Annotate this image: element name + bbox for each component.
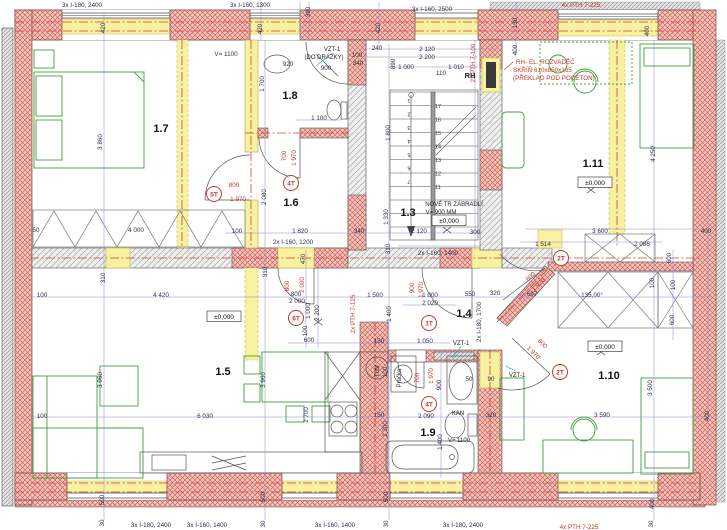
stair-step-number: 6 — [407, 165, 410, 171]
dimension-label: 310 — [262, 266, 269, 277]
dimension-label: 1 820 — [292, 228, 308, 235]
furniture-1-10 — [500, 378, 693, 474]
floor-plan-page: 3x I-180, 24003x I-160, 13003x I-160, 25… — [0, 0, 727, 530]
dimension-label: 3x I-160, 2500 — [412, 6, 453, 13]
room-number-label: 1.10 — [598, 370, 619, 382]
chair — [573, 419, 595, 441]
window-bottom-3 — [390, 473, 463, 500]
stair-step-number: 13 — [435, 158, 441, 164]
dimension-label: 3x I-160, 1300 — [230, 2, 271, 9]
stair-step-number: 11 — [435, 185, 441, 191]
dimension-label: 100 — [649, 277, 656, 288]
dimension-label: 1 400 — [437, 434, 444, 450]
lintel-door-label: 800 — [284, 280, 291, 291]
lintel-door-label: 1 970 — [418, 282, 425, 298]
lintel-door-label: RH- EL. ROZVADĚČ — [516, 57, 575, 66]
dimension-label: 3 960 — [260, 372, 267, 388]
door-tag-label: 5T — [210, 191, 218, 198]
dining-table — [262, 352, 328, 402]
dimension-label: 50 — [465, 376, 473, 383]
dimension-label: 320 — [486, 412, 497, 419]
dimension-label: 320 — [490, 290, 501, 297]
lintel-door-label: 900 — [409, 282, 416, 293]
bed-1-7 — [34, 50, 144, 168]
lintel-door-label: 1 970 — [428, 368, 435, 384]
dimension-label: 100 — [302, 325, 309, 336]
dimension-label: 1 800 — [385, 125, 392, 141]
stair-step-number: 7 — [407, 178, 410, 184]
dimension-label: 2 090 — [418, 413, 434, 420]
dimension-label: 3 860 — [97, 134, 104, 150]
dimension-label: 400 — [701, 228, 712, 235]
dimension-label: 1 010 — [448, 64, 464, 71]
dimension-label: 500 — [383, 491, 390, 502]
dimension-label: 310 — [385, 243, 392, 254]
dimension-label: 3x I-160, 1400 — [315, 522, 356, 529]
window-bottom-2 — [282, 473, 337, 500]
dimension-label: 2 086 — [634, 241, 650, 248]
floor-plan-canvas: 3x I-180, 24003x I-160, 13003x I-160, 25… — [0, 0, 727, 530]
lintel-door-label: 700 — [281, 150, 288, 161]
dimension-label: 30 — [260, 520, 267, 528]
dimension-label: 3 960 — [97, 372, 104, 388]
dimension-label: 100 — [352, 52, 363, 59]
dimension-label: 1 400 — [386, 306, 393, 322]
dimension-label: 1 000 — [305, 303, 312, 319]
dimension-label: 150 — [374, 338, 385, 345]
room-number-label: 1.11 — [583, 158, 604, 170]
dimension-label: 420 — [375, 22, 382, 33]
dimension-label: 2x I-160, 1400 — [418, 250, 459, 257]
sofa — [33, 376, 97, 478]
door-tag-label: 1T — [425, 320, 433, 327]
lintel-door-label: 1 970 — [291, 150, 298, 166]
furniture-1-5 — [33, 352, 330, 478]
chair — [312, 406, 330, 422]
dimension-label: 4 000 — [128, 227, 144, 234]
dimension-label: 500 — [260, 491, 267, 502]
room-number-label: 1.8 — [282, 90, 297, 102]
dimension-label: 30 — [648, 520, 655, 528]
dimension-label: 3 590 — [594, 412, 610, 419]
lintel-door-label: 700 — [414, 372, 421, 383]
window-top-1 — [62, 10, 170, 40]
dimension-label: 100 — [382, 366, 389, 377]
stair-step-number: 16 — [435, 118, 441, 124]
chair — [244, 384, 260, 402]
dimension-label: 30 — [383, 520, 390, 528]
dimension-label: 150 — [374, 412, 385, 419]
door-tag-label: 4T — [425, 401, 433, 408]
annotation-label: VZT-1 — [453, 341, 470, 347]
stair-step-number: 17 — [435, 104, 441, 110]
stair-step-number: 4 — [407, 138, 410, 144]
dimension-label: 1 514 — [535, 241, 551, 248]
annotation-label: Pračka — [397, 368, 403, 387]
door-tag-label: 2T — [557, 255, 565, 262]
bathroom-1-8 — [264, 42, 348, 120]
dimension-label: 600 — [304, 337, 315, 344]
room-number-label: 1.7 — [153, 123, 168, 135]
dimension-label: 900 — [321, 65, 332, 72]
dimension-label: 550 — [465, 291, 476, 298]
room-number-label: 1.9 — [420, 427, 435, 439]
dimension-label: 470 — [300, 253, 307, 264]
armchair — [502, 112, 524, 168]
dimension-label: 3x I-180, 2400 — [62, 2, 103, 9]
dimension-label: 2x I-180, 1700 — [476, 301, 483, 342]
dimension-label: 300 — [470, 229, 481, 236]
dimension-label: 500 — [99, 494, 106, 505]
dimension-label: 390 — [305, 6, 312, 17]
annotation-label: RH — [465, 71, 476, 80]
dimension-label: 130 — [512, 17, 519, 28]
kitchen — [140, 352, 362, 473]
dimension-label: 4 250 — [650, 146, 657, 162]
dimension-label: 3x I-180, 2400 — [443, 522, 484, 529]
dimension-label: 2 200 — [419, 54, 435, 61]
stair-step-number: 5 — [407, 151, 410, 157]
toilet — [327, 100, 341, 120]
dimension-label: 50 — [32, 227, 40, 234]
dimension-label: 2 120 — [419, 46, 435, 53]
lintel-door-label: 4x PTH 7-225 — [560, 524, 599, 530]
dimension-label: 6 030 — [197, 413, 213, 420]
dimension-label: 600 — [669, 314, 676, 325]
dimension-label: 400 — [512, 44, 519, 55]
stair-step-number: 1 — [407, 97, 410, 103]
lintel-door-label: 1 970 — [230, 196, 246, 203]
rh-cabinet — [486, 62, 496, 88]
wardrobe — [500, 378, 524, 440]
dimension-label: 3 600 — [592, 228, 608, 235]
dimension-label: 1 100 — [311, 115, 327, 122]
new-shaft-strip-17 — [177, 40, 188, 248]
dimension-label: 600 — [666, 252, 673, 263]
dimension-label: 400 — [649, 498, 656, 509]
dimension-label: 3x I-180, 2400 — [131, 522, 172, 529]
dimension-label: 900 — [436, 379, 443, 390]
annotation-label: V= 1100 — [448, 438, 471, 444]
stair-step-number: 2 — [407, 111, 410, 117]
dimension-label: 1 700 — [259, 76, 266, 92]
door-tag-label: 4T — [287, 180, 295, 187]
dimension-label: 2 080 — [261, 189, 268, 205]
dimension-label: 4 420 — [153, 292, 169, 299]
door-tag-label: 6T — [292, 315, 300, 322]
level-mark-label: ±0,000 — [585, 180, 605, 187]
chair — [286, 406, 304, 422]
dimension-label: 3x I-160, 1400 — [187, 522, 228, 529]
dimension-label: 890 — [390, 58, 397, 69]
annotation-label: (DO DRÁŽKY) — [305, 53, 344, 61]
dimension-label: 1 500 — [367, 292, 383, 299]
lintel-door-label: 4x PTH 7-225 — [562, 2, 601, 9]
stair-step-number: 14 — [435, 145, 441, 151]
room-number-label: 1.3 — [400, 207, 415, 219]
dimension-label: 110 — [436, 70, 447, 77]
desk — [543, 440, 633, 473]
entrance-door-top — [415, 10, 478, 40]
dimension-label: 1 330 — [383, 209, 390, 225]
dimension-label: 2 700 — [303, 407, 310, 423]
dimension-label: 30 — [99, 519, 106, 527]
door-tag-label: 2T — [556, 369, 564, 376]
room-number-label: 1.4 — [456, 308, 472, 320]
level-mark-label: ±0,000 — [214, 314, 234, 321]
dimension-label: 2x I-160, 1200 — [273, 239, 314, 246]
room-number-label: 1.6 — [283, 197, 298, 209]
stair-step-number: 3 — [407, 124, 410, 130]
dimension-label: 340 — [354, 228, 365, 235]
dimension-label: 2 300 — [382, 421, 389, 437]
dimension-label: 420 — [257, 23, 264, 34]
window-bottom-4 — [558, 473, 658, 500]
dimension-label: 2 020 — [422, 300, 438, 307]
annotation-label: KAN — [452, 411, 464, 417]
dimension-label: 400 — [644, 25, 651, 36]
window-top-3 — [558, 10, 658, 40]
dimension-label: 920 — [283, 61, 294, 68]
dimension-label: 310 — [100, 272, 107, 283]
window-bottom-1 — [67, 473, 167, 500]
dimension-label: V= 1100 — [214, 51, 238, 58]
dimension-label: 100 — [670, 279, 677, 290]
room-number-label: 1.5 — [215, 366, 230, 378]
lintel-door-label: 2 000 — [299, 277, 306, 293]
annotation-label: NOVÉ TR ZÁBRADLÍ — [425, 201, 483, 208]
bed — [640, 44, 694, 148]
dimension-label: 3 500 — [647, 380, 654, 396]
lintel-door-label: SKŘÍŇ 610x850x165 — [513, 65, 572, 74]
lintel-door-label: 800 — [229, 182, 240, 189]
dimension-label: 240 — [372, 45, 383, 52]
dimension-label: 100 — [232, 228, 243, 235]
dimension-label: 340 — [353, 60, 364, 67]
stair-step-number: 15 — [435, 131, 441, 137]
dimension-label: 135,00° — [581, 291, 603, 299]
dimension-label: 90 — [487, 376, 495, 383]
dimension-label: 420 — [100, 22, 107, 33]
dimension-label: 2 000 — [289, 298, 305, 305]
stair-step-number: 12 — [435, 172, 441, 178]
annotation-label: VZT-1 — [509, 373, 526, 379]
annotation-label: VZT-1 — [324, 47, 341, 53]
dimension-label: 400 — [704, 410, 711, 421]
lintel-door-label: (PŘEKLAD POD POCETON) — [513, 73, 595, 82]
dimension-label: 100 — [37, 413, 48, 420]
lintel-door-label: 2x PTH 7-125 — [350, 294, 357, 333]
dimension-label: 2 200 — [314, 305, 321, 321]
dimension-label: 2 120 — [411, 228, 427, 235]
dimension-label: 1 000 — [398, 64, 414, 71]
lintel-door-label: 800 — [536, 338, 549, 351]
interior-walls — [32, 40, 693, 473]
new-wall-15 — [245, 268, 258, 360]
level-mark-label: ±0,000 — [439, 218, 459, 225]
annotation-label: TUV — [375, 365, 381, 377]
coffee-table — [100, 366, 138, 406]
dimension-label: 100 — [37, 292, 48, 299]
dimension-label: 1 050 — [417, 338, 433, 345]
level-mark-label: ±0,000 — [595, 344, 615, 351]
